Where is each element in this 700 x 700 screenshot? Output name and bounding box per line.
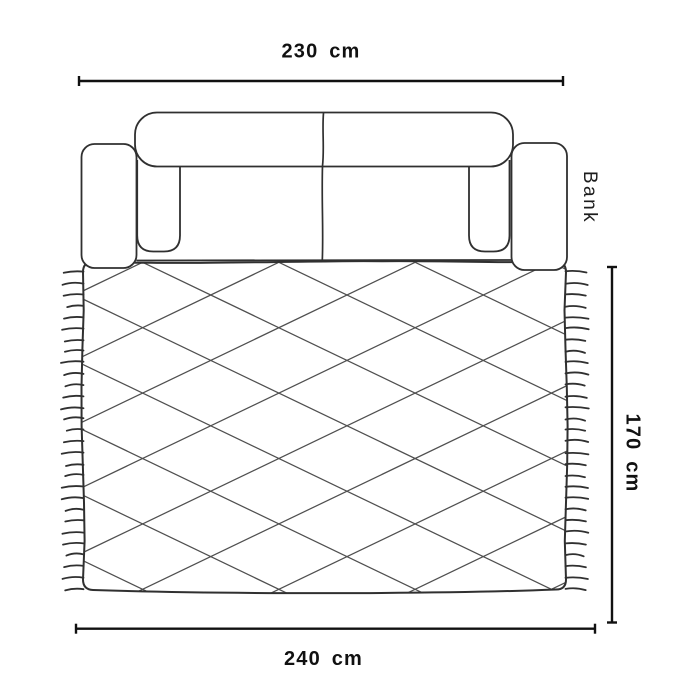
svg-text:170 cm: 170 cm <box>622 413 644 492</box>
svg-text:240 cm: 240 cm <box>284 648 363 670</box>
svg-text:Bank: Bank <box>579 171 600 224</box>
svg-text:230 cm: 230 cm <box>281 41 360 63</box>
